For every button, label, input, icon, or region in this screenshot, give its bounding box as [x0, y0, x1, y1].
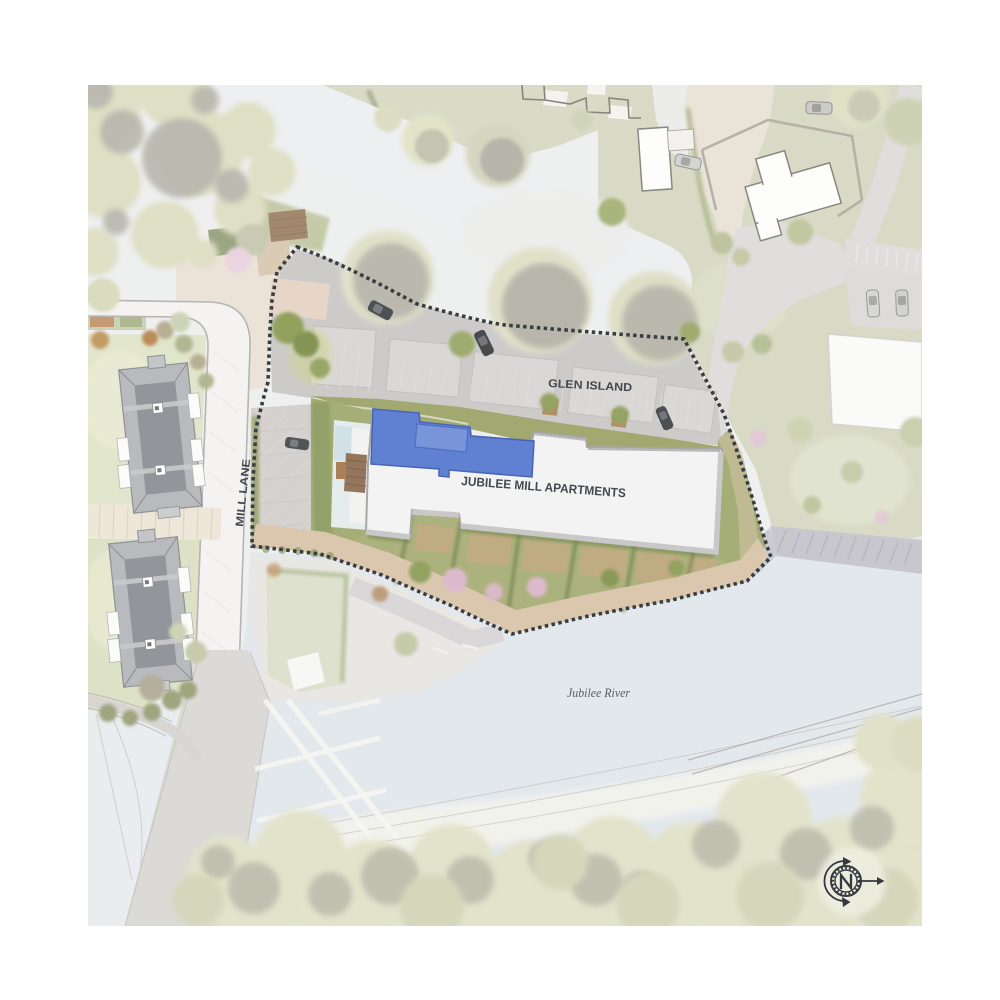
svg-text:Jubilee River: Jubilee River [567, 686, 630, 700]
